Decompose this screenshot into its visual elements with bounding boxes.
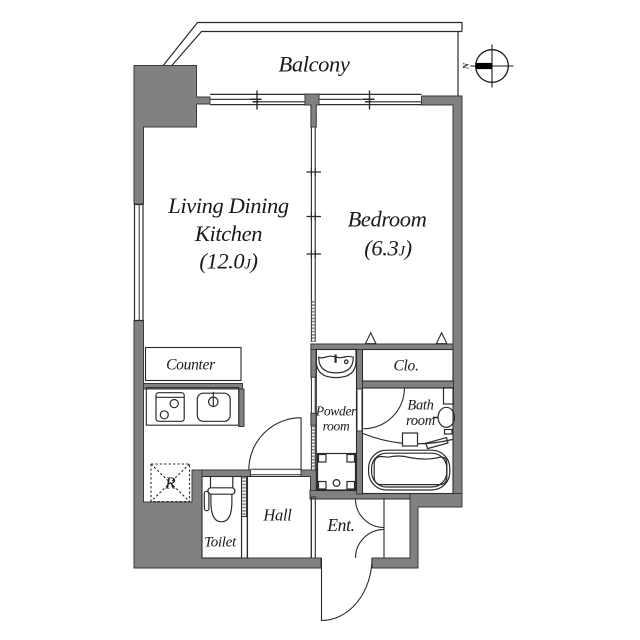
svg-text:Toilet: Toilet bbox=[204, 535, 237, 551]
svg-text:N: N bbox=[461, 62, 471, 70]
svg-text:Bath: Bath bbox=[407, 398, 433, 414]
svg-text:R: R bbox=[164, 474, 176, 493]
svg-text:Balcony: Balcony bbox=[279, 52, 350, 77]
svg-text:Kitchen: Kitchen bbox=[194, 221, 262, 246]
svg-text:Clo.: Clo. bbox=[393, 358, 418, 375]
svg-text:Hall: Hall bbox=[262, 506, 292, 525]
svg-text:Powder: Powder bbox=[315, 404, 357, 419]
svg-text:Bedroom: Bedroom bbox=[348, 207, 427, 232]
svg-text:Ent.: Ent. bbox=[326, 515, 354, 535]
svg-text:room: room bbox=[323, 419, 350, 434]
svg-text:Living Dining: Living Dining bbox=[167, 193, 289, 218]
svg-text:Counter: Counter bbox=[166, 357, 216, 374]
svg-text:room: room bbox=[406, 413, 435, 429]
svg-text:(6.3J): (6.3J) bbox=[364, 236, 411, 261]
